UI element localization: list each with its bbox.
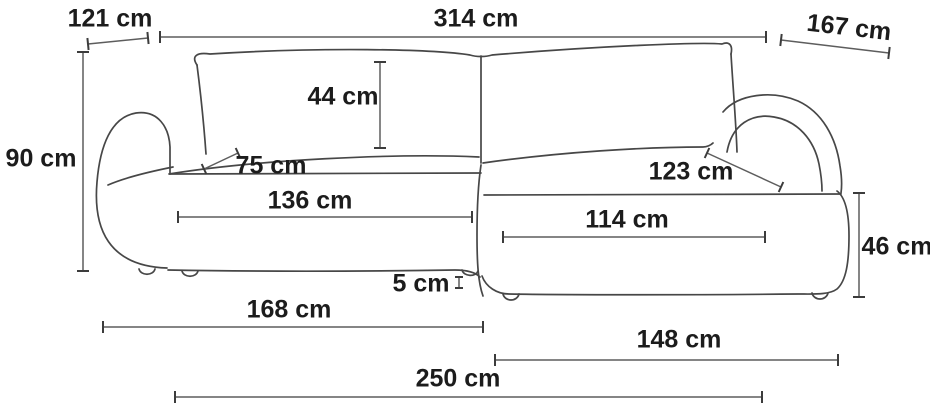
left-arm-foot bbox=[139, 269, 155, 274]
right-seat-depth-label: 123 cm bbox=[649, 160, 734, 185]
left-arm-outline bbox=[96, 113, 170, 268]
right-seat-width-label: 114 cm bbox=[585, 208, 668, 233]
chaise-front-top bbox=[484, 194, 841, 195]
left-seat-back-curve bbox=[169, 156, 479, 174]
right-seat-height-label: 46 cm bbox=[862, 235, 930, 260]
right-base-width-label: 148 cm bbox=[637, 328, 722, 353]
left-seat-depth-label: 75 cm bbox=[236, 154, 307, 179]
sofa-line-drawing bbox=[0, 0, 930, 410]
sofa-dimension-diagram: 121 cm 314 cm 167 cm 90 cm 44 cm 75 cm 1… bbox=[0, 0, 930, 410]
backrest-cushion-height-label: 44 cm bbox=[308, 85, 379, 110]
sofa-outline bbox=[96, 43, 849, 300]
total-width-label: 314 cm bbox=[434, 7, 519, 32]
arm-width-top-label: 121 cm bbox=[68, 7, 153, 32]
leg-height-label: 5 cm bbox=[393, 272, 450, 297]
total-height-label: 90 cm bbox=[6, 147, 77, 172]
left-base-width-label: 168 cm bbox=[247, 298, 332, 323]
left-seat-width-label: 136 cm bbox=[268, 189, 353, 214]
total-depth-bottom-label: 250 cm bbox=[416, 367, 501, 392]
right-arm-inner-curve bbox=[727, 116, 822, 191]
back-top-edge bbox=[195, 43, 732, 65]
left-arm-inner-curve bbox=[108, 167, 173, 185]
left-seat-front-top bbox=[170, 173, 481, 174]
left-pillow-left-edge bbox=[197, 65, 206, 154]
dimension-lines bbox=[83, 37, 889, 397]
right-arm-outline bbox=[723, 95, 842, 193]
left-seat-foot bbox=[182, 271, 198, 276]
dim-line-121 bbox=[88, 38, 148, 44]
